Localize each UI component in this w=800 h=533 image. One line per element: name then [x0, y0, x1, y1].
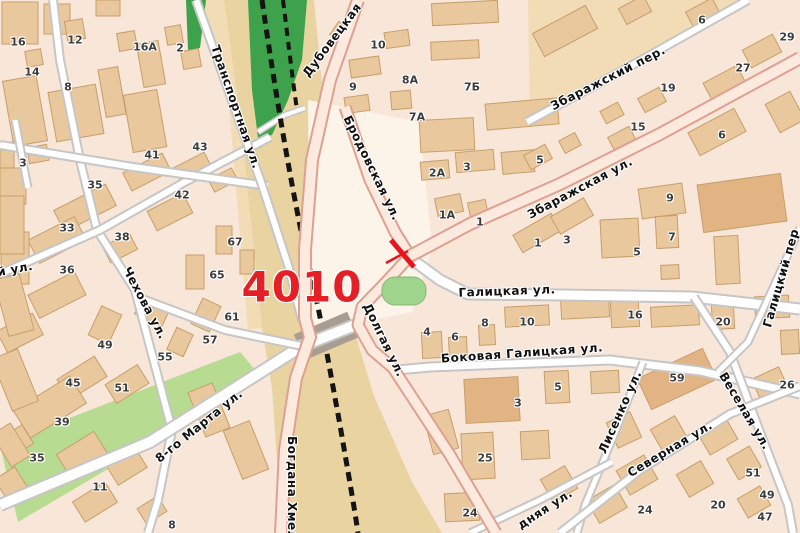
building	[240, 250, 254, 274]
building	[419, 118, 475, 153]
park-oval	[382, 277, 426, 305]
building	[186, 255, 204, 289]
building	[117, 31, 138, 52]
building	[610, 300, 639, 327]
building	[661, 265, 680, 280]
building	[464, 377, 520, 424]
building	[2, 2, 38, 44]
building	[25, 49, 44, 68]
building	[216, 226, 232, 254]
building	[420, 160, 449, 180]
building	[714, 235, 740, 284]
building	[505, 305, 550, 327]
map-canvas[interactable]	[0, 0, 800, 533]
building	[0, 196, 24, 254]
building	[431, 40, 480, 60]
building	[600, 218, 640, 258]
building	[590, 370, 619, 393]
building	[651, 305, 700, 327]
building	[478, 325, 495, 346]
building	[390, 90, 411, 110]
building	[638, 183, 686, 219]
building	[544, 370, 570, 403]
building	[655, 215, 679, 248]
building	[455, 149, 495, 172]
building	[64, 19, 85, 42]
building	[448, 337, 467, 360]
building	[421, 331, 442, 358]
building	[520, 430, 549, 459]
building	[384, 29, 410, 48]
building	[780, 330, 799, 355]
building	[181, 49, 202, 70]
building	[96, 0, 120, 16]
map-viewport[interactable]: 4010 Транспортная ул.ДубовецкаяБродовска…	[0, 0, 800, 533]
building	[349, 56, 381, 78]
building	[165, 25, 184, 46]
building	[431, 0, 498, 25]
